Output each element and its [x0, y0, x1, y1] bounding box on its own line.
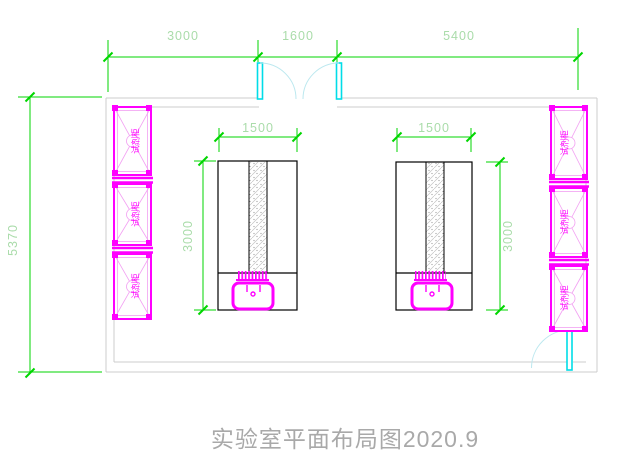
reagent-cabinet: 试剂柜 [112, 182, 152, 246]
left-overall-dimension: 5370 [6, 93, 102, 378]
single-door-bottom-right [532, 330, 573, 370]
floor-plan-drawing: 3000 1600 5400 5370 1500 3000 1500 [0, 0, 619, 469]
cabinet-label: 试剂柜 [130, 128, 140, 154]
dim-label-3000-top: 3000 [167, 29, 199, 43]
double-door-top [258, 63, 342, 99]
cabinet-label: 试剂柜 [559, 130, 569, 156]
dim-label-1500-left-bench: 1500 [242, 121, 274, 135]
door-leaf-right [337, 63, 342, 99]
reagent-cabinet: 试剂柜 [112, 105, 152, 176]
dim-label-5400-top: 5400 [443, 29, 475, 43]
dim-label-3000-left-bench: 3000 [181, 220, 195, 252]
top-dimension: 3000 1600 5400 [104, 28, 583, 92]
dim-label-3000-right-bench: 3000 [501, 220, 515, 252]
floor-plan-canvas: 3000 1600 5400 5370 1500 3000 1500 [0, 0, 619, 469]
door-swing-arc-right [303, 63, 339, 99]
door-swing-arc-left [260, 63, 296, 99]
reagent-cabinet: 试剂柜 [549, 264, 588, 332]
bench-reagent-shelf [249, 161, 267, 273]
cabinet-label: 试剂柜 [130, 201, 140, 227]
reagent-cabinet: 试剂柜 [549, 186, 588, 258]
bench-reagent-shelf [426, 162, 444, 273]
cabinet-label: 试剂柜 [559, 285, 569, 311]
door-leaf [567, 330, 572, 370]
dim-label-1600-top: 1600 [282, 29, 314, 43]
room-walls [106, 98, 597, 372]
dim-label-1500-right-bench: 1500 [418, 121, 450, 135]
door-leaf-left [258, 63, 263, 99]
reagent-cabinet: 试剂柜 [112, 252, 152, 320]
left-lab-bench [218, 161, 297, 310]
dim-label-5370-left: 5370 [6, 224, 20, 256]
drawing-title: 实验室平面布局图2020.9 [170, 420, 520, 454]
right-cabinet-column: 试剂柜 试剂柜 试剂柜 [549, 105, 589, 332]
left-cabinet-column: 试剂柜 试剂柜 试剂柜 [112, 105, 153, 320]
right-lab-bench [396, 162, 472, 310]
cabinet-label: 试剂柜 [130, 273, 140, 299]
reagent-cabinet: 试剂柜 [549, 105, 588, 180]
cabinet-label: 试剂柜 [559, 209, 569, 235]
